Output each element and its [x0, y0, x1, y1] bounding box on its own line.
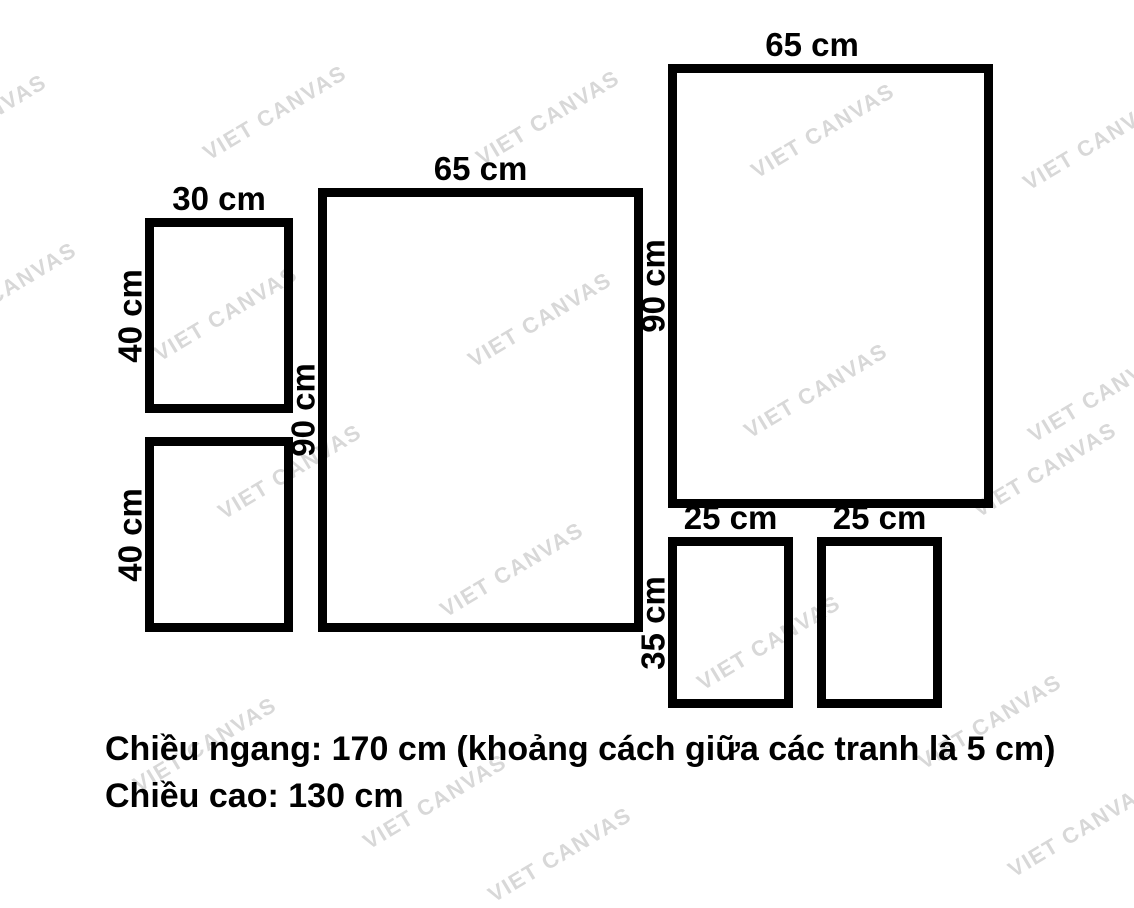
frame-30x40-lower-height-label: 40 cm — [114, 488, 147, 582]
size-guide-diagram: Chiều ngang: 170 cm (khoảng cách giữa cá… — [0, 0, 1134, 850]
frame-30x40-lower — [145, 437, 293, 632]
frame-65x90-right-height-label: 90 cm — [637, 239, 670, 333]
frame-30x40-upper-height-label: 40 cm — [114, 269, 147, 363]
frame-65x90-center — [318, 188, 643, 632]
frame-25x35-left-width-label: 25 cm — [684, 501, 778, 534]
frame-30x40-upper — [145, 218, 293, 413]
watermark-text: VIET CANVAS — [1019, 90, 1134, 196]
frame-25x35-left — [668, 537, 793, 708]
watermark-text: VIET CANVAS — [0, 69, 51, 175]
frame-25x35-right — [817, 537, 942, 708]
frame-65x90-center-height-label: 90 cm — [287, 363, 320, 457]
frame-25x35-right-width-label: 25 cm — [833, 501, 927, 534]
footer-vertical-dimension: Chiều cao: 130 cm — [105, 773, 1055, 820]
frame-65x90-right — [668, 64, 993, 508]
watermark-text: VIET CANVAS — [199, 60, 352, 166]
watermark-text: VIET CANVAS — [0, 237, 81, 343]
footer-horizontal-dimension: Chiều ngang: 170 cm (khoảng cách giữa cá… — [105, 726, 1055, 773]
frame-25x35-left-height-label: 35 cm — [637, 576, 670, 670]
frame-65x90-center-width-label: 65 cm — [434, 152, 528, 185]
frame-65x90-right-width-label: 65 cm — [765, 28, 859, 61]
footer-dimensions: Chiều ngang: 170 cm (khoảng cách giữa cá… — [105, 726, 1055, 820]
frame-30x40-upper-width-label: 30 cm — [172, 182, 266, 215]
